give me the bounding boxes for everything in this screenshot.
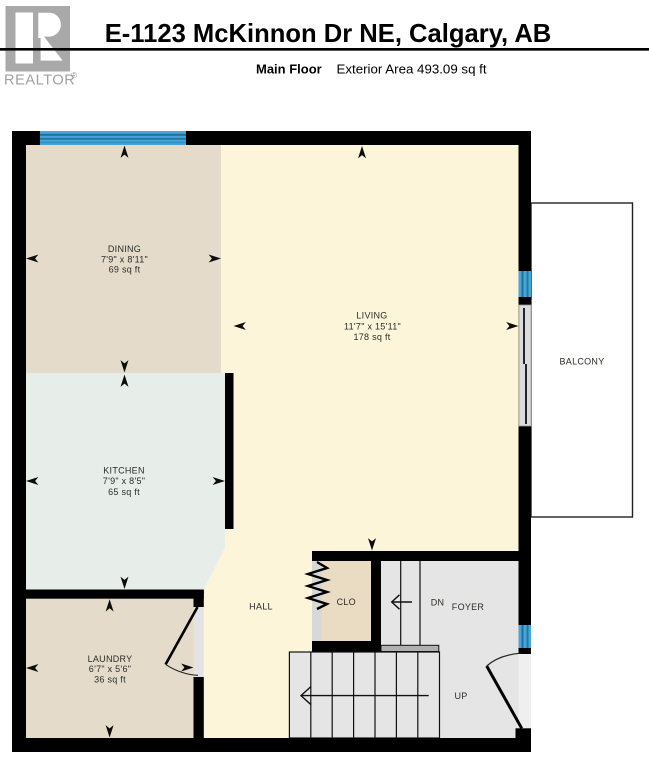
svg-text:HALL: HALL <box>249 602 273 612</box>
svg-text:7'9" x 8'11": 7'9" x 8'11" <box>101 254 148 264</box>
svg-text:DN: DN <box>431 597 445 607</box>
svg-text:36 sq ft: 36 sq ft <box>94 674 126 684</box>
svg-text:Exterior Area 493.09 sq ft: Exterior Area 493.09 sq ft <box>337 62 487 77</box>
svg-text:LAUNDRY: LAUNDRY <box>88 654 133 664</box>
svg-text:Main Floor: Main Floor <box>256 62 322 77</box>
svg-text:7'9" x 8'5": 7'9" x 8'5" <box>103 476 145 486</box>
svg-text:178 sq ft: 178 sq ft <box>353 332 390 342</box>
svg-text:6'7" x 5'6": 6'7" x 5'6" <box>89 664 131 674</box>
svg-text:69 sq ft: 69 sq ft <box>109 265 141 275</box>
svg-text:FOYER: FOYER <box>452 602 485 612</box>
svg-text:65 sq ft: 65 sq ft <box>108 487 140 497</box>
svg-text:LIVING: LIVING <box>356 311 387 321</box>
svg-text:KITCHEN: KITCHEN <box>103 465 144 475</box>
svg-text:DINING: DINING <box>108 244 141 254</box>
svg-text:E-1123 McKinnon Dr NE, Calgary: E-1123 McKinnon Dr NE, Calgary, AB <box>105 20 552 48</box>
svg-text:®: ® <box>71 70 78 80</box>
svg-text:BALCONY: BALCONY <box>560 357 605 367</box>
svg-text:11'7" x 15'11": 11'7" x 15'11" <box>344 322 401 332</box>
svg-text:UP: UP <box>454 691 467 701</box>
svg-text:CLO: CLO <box>337 597 356 607</box>
svg-text:REALTOR: REALTOR <box>4 73 75 89</box>
